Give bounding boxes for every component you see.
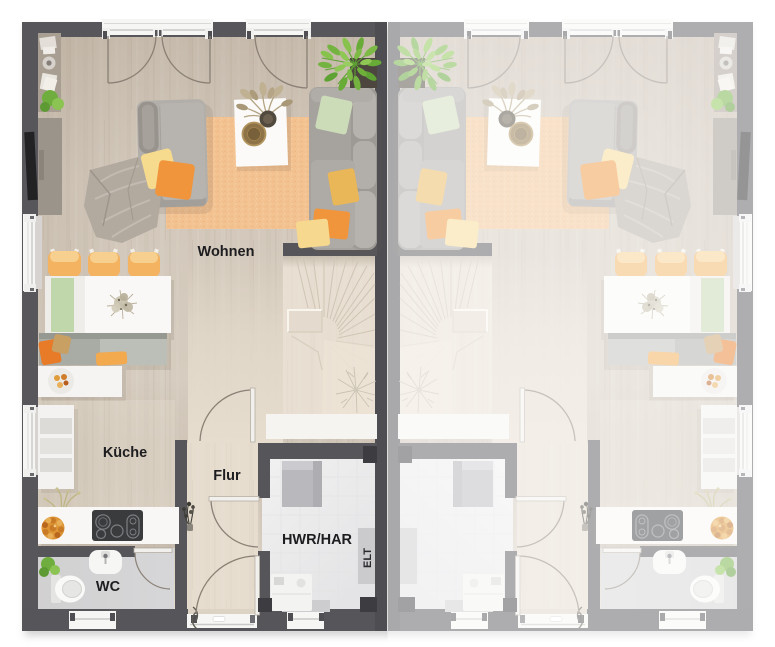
svg-text:Flur: Flur <box>213 468 241 484</box>
svg-text:Wohnen: Wohnen <box>198 244 255 260</box>
svg-text:HWR/HAR: HWR/HAR <box>282 532 353 548</box>
svg-text:WC: WC <box>96 579 121 595</box>
svg-text:Küche: Küche <box>103 445 147 461</box>
svg-text:ELT: ELT <box>362 548 374 568</box>
